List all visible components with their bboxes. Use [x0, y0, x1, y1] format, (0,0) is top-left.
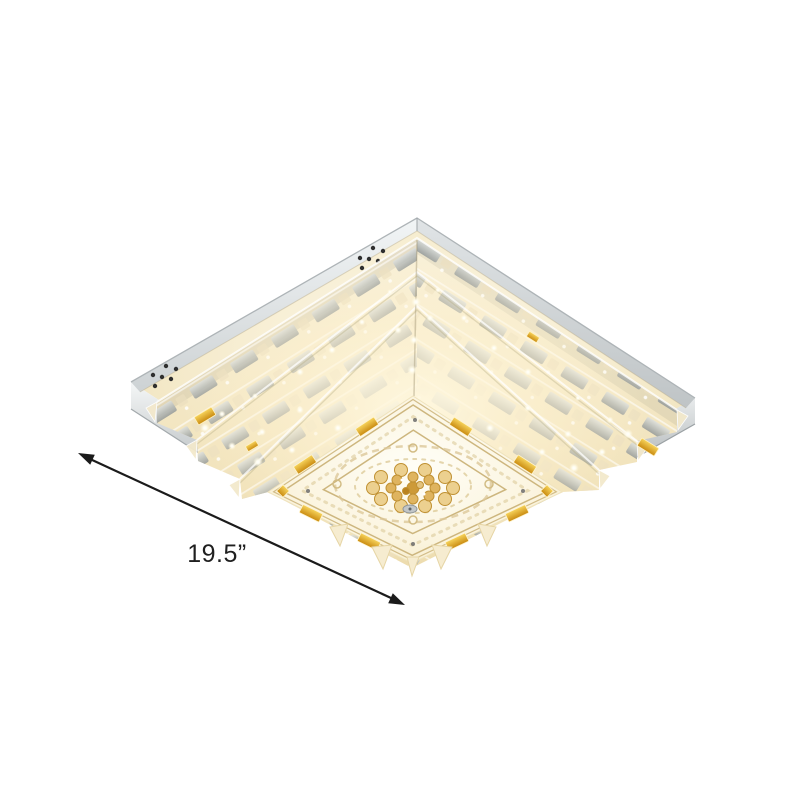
dimension-arrowhead-end [388, 593, 405, 605]
dimension-arrowhead-start [78, 453, 95, 465]
dimension-label: 19.5” [187, 540, 246, 568]
product-photo: 19.5” [0, 0, 800, 800]
product-image-canvas: 19.5” [0, 0, 800, 800]
